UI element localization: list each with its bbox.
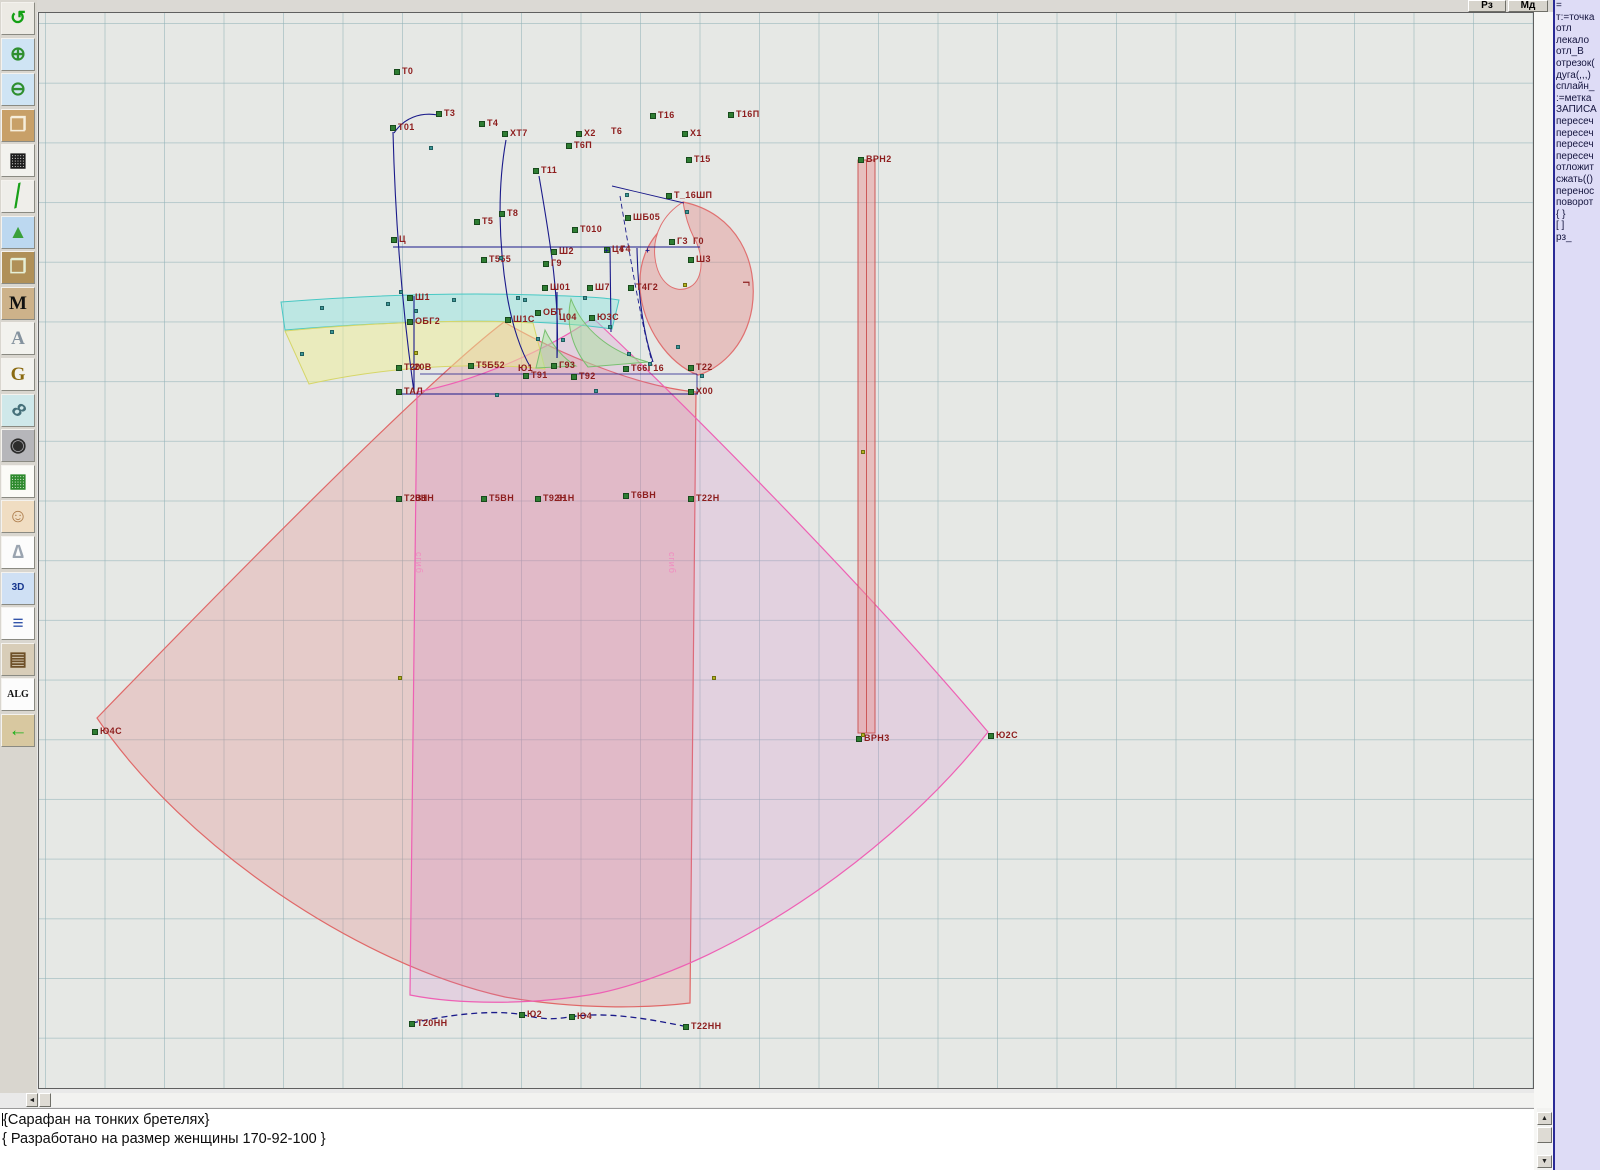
- command-item[interactable]: =: [1555, 0, 1600, 12]
- zoom-out-icon: ⊖: [10, 80, 26, 99]
- ruler-icon[interactable]: 8: [1, 394, 35, 427]
- canvas-hscroll-thumb[interactable]: [39, 1093, 51, 1107]
- piece-preview-icon: ❐: [9, 116, 26, 135]
- compass-a-icon[interactable]: A: [1, 322, 35, 355]
- ruler-icon: 8: [8, 399, 28, 420]
- garment-icon[interactable]: ∆: [1, 536, 35, 569]
- command-item[interactable]: рз_: [1555, 232, 1600, 244]
- command-item[interactable]: лекало: [1555, 35, 1600, 47]
- threed-icon[interactable]: 3D: [1, 572, 35, 605]
- compass-g-icon[interactable]: G: [1, 358, 35, 391]
- canvas-hscroll-left[interactable]: ◄: [26, 1093, 38, 1107]
- segment-icon[interactable]: ╱: [1, 180, 35, 213]
- measure-m-icon[interactable]: M: [1, 287, 35, 320]
- skirt-front-petal: [410, 318, 988, 1002]
- image-icon[interactable]: ▲: [1, 216, 35, 249]
- text-list-icon: ≡: [12, 614, 23, 633]
- command-item[interactable]: поворот: [1555, 197, 1600, 209]
- app-window: Рз Мд ↺⊕⊖❐▦╱▲❐MAG8◉▦☺∆3D≡▤ALG←: [0, 0, 1600, 1170]
- table-icon: ▦: [9, 472, 27, 491]
- script-line-1: {Сарафан на тонких бретелях}: [2, 1111, 1534, 1130]
- zoom-in-icon[interactable]: ⊕: [1, 38, 35, 71]
- alg-icon[interactable]: ALG: [1, 678, 35, 711]
- grid-icon: ▦: [9, 151, 27, 170]
- command-item[interactable]: отрезок(: [1555, 58, 1600, 70]
- script-text-area[interactable]: {Сарафан на тонких бретелях} { Разработа…: [0, 1108, 1534, 1170]
- exit-icon[interactable]: ←: [1, 714, 35, 747]
- text-list-icon[interactable]: ≡: [1, 607, 35, 640]
- toolbar: ↺⊕⊖❐▦╱▲❐MAG8◉▦☺∆3D≡▤ALG←: [0, 0, 37, 1093]
- garment-icon: ∆: [12, 543, 24, 562]
- script-line-2: { Разработано на размер женщины 170-92-1…: [2, 1130, 1534, 1149]
- zoom-out-icon[interactable]: ⊖: [1, 73, 35, 106]
- segment-icon: ╱: [10, 186, 27, 208]
- command-item[interactable]: пересеч: [1555, 116, 1600, 128]
- pattern-piece-icon[interactable]: ❐: [1, 251, 35, 284]
- undo-icon: ↺: [10, 9, 26, 28]
- top-strip: [37, 0, 1553, 12]
- command-item[interactable]: отложит: [1555, 162, 1600, 174]
- command-item[interactable]: :=метка: [1555, 93, 1600, 105]
- bodice-piece: [640, 202, 753, 375]
- camera-icon[interactable]: ◉: [1, 429, 35, 462]
- command-item[interactable]: [ ]: [1555, 220, 1600, 232]
- compass-g-icon: G: [11, 365, 26, 384]
- command-item[interactable]: перенос: [1555, 186, 1600, 198]
- command-item[interactable]: т:=точка: [1555, 12, 1600, 24]
- command-item[interactable]: отл_В: [1555, 46, 1600, 58]
- model-photo-icon: ☺: [8, 507, 27, 526]
- exit-icon: ←: [9, 721, 28, 740]
- panel-gap: [1534, 12, 1553, 1170]
- command-item[interactable]: сжать((): [1555, 174, 1600, 186]
- undo-icon[interactable]: ↺: [1, 2, 35, 35]
- command-item[interactable]: { }: [1555, 209, 1600, 221]
- rz-button[interactable]: Рз: [1468, 0, 1506, 12]
- strap-strip: [858, 160, 875, 733]
- command-item[interactable]: отл: [1555, 23, 1600, 35]
- piece-preview-icon[interactable]: ❐: [1, 109, 35, 142]
- threed-icon: 3D: [12, 583, 25, 593]
- command-item[interactable]: пересеч: [1555, 151, 1600, 163]
- status-vscroll-down[interactable]: ▼: [1537, 1155, 1552, 1168]
- books-icon[interactable]: ▤: [1, 643, 35, 676]
- pattern-piece-icon: ❐: [9, 258, 26, 277]
- command-item[interactable]: пересеч: [1555, 139, 1600, 151]
- grid-icon[interactable]: ▦: [1, 144, 35, 177]
- canvas-hscroll-track[interactable]: [26, 1093, 1534, 1107]
- md-button[interactable]: Мд: [1508, 0, 1548, 12]
- command-item[interactable]: дуга(,,,): [1555, 70, 1600, 82]
- status-vscroll-thumb[interactable]: [1537, 1127, 1552, 1143]
- command-item[interactable]: пересеч: [1555, 128, 1600, 140]
- model-photo-icon[interactable]: ☺: [1, 500, 35, 533]
- pattern-drawing: [38, 12, 1534, 1089]
- command-item[interactable]: ЗАПИСА: [1555, 104, 1600, 116]
- books-icon: ▤: [9, 650, 27, 669]
- measure-m-icon: M: [9, 294, 27, 313]
- command-item[interactable]: сплайн_: [1555, 81, 1600, 93]
- table-icon[interactable]: ▦: [1, 465, 35, 498]
- zoom-in-icon: ⊕: [10, 45, 26, 64]
- image-icon: ▲: [9, 223, 28, 242]
- camera-icon: ◉: [10, 436, 27, 455]
- alg-icon: ALG: [7, 690, 29, 700]
- status-vscroll-up[interactable]: ▲: [1537, 1112, 1552, 1125]
- command-panel: =т:=точкаотллекалоотл_Вотрезок(дуга(,,,)…: [1553, 0, 1600, 1170]
- compass-a-icon: A: [11, 329, 25, 348]
